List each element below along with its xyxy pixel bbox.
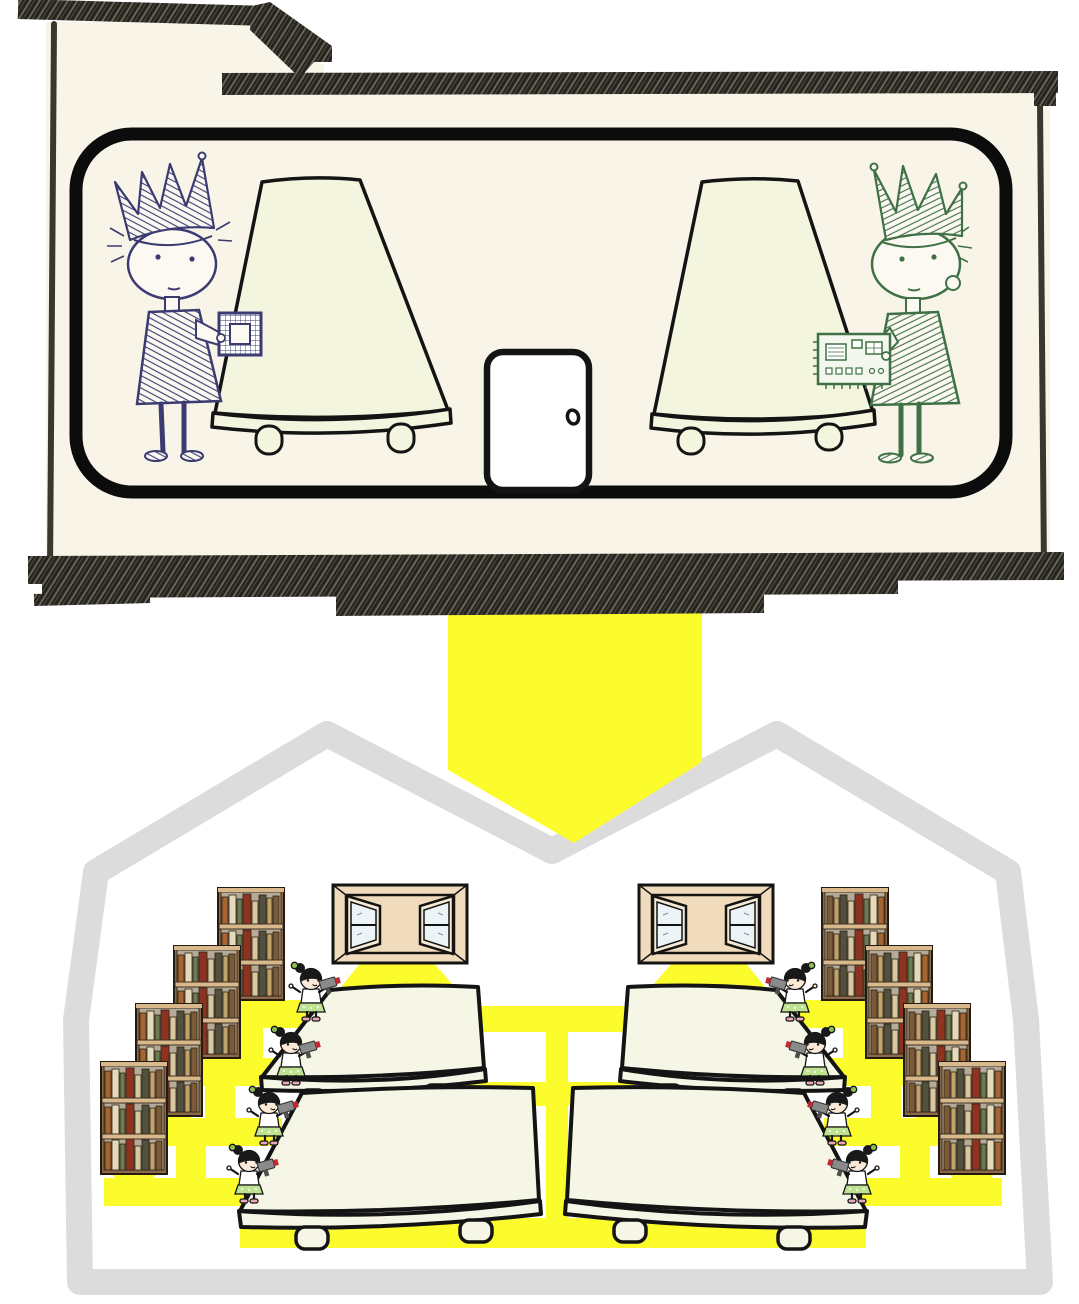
- foundation-band-3: [336, 601, 764, 604]
- board-capacitor: [870, 369, 875, 374]
- foot: [879, 454, 901, 463]
- neck: [906, 298, 920, 313]
- top-house: [18, 2, 1058, 576]
- table-foot: [256, 426, 282, 454]
- eye: [931, 254, 936, 259]
- right-wall: [1040, 104, 1044, 572]
- illustration-stage: [0, 0, 1079, 1304]
- illustration-canvas: [0, 0, 1079, 1304]
- left-wall: [50, 24, 54, 570]
- table-foot: [678, 428, 704, 454]
- crown-ball: [199, 153, 206, 160]
- crown-ball: [871, 164, 878, 171]
- eye: [189, 256, 194, 261]
- eye: [155, 254, 160, 259]
- board-capacitor: [879, 369, 884, 374]
- circuit-board-icon: [813, 334, 890, 389]
- table-foot: [388, 424, 414, 452]
- foundation-band-left: [34, 597, 150, 600]
- foundation-band-2: [42, 586, 898, 590]
- table-foot: [816, 424, 842, 450]
- ear: [946, 276, 960, 290]
- main-roof: [222, 82, 1058, 84]
- board-pad: [836, 368, 842, 374]
- upper-roof: [18, 9, 268, 16]
- door: [487, 352, 589, 490]
- chip-die: [230, 324, 250, 344]
- foot: [181, 451, 203, 461]
- door-knob: [566, 409, 580, 425]
- board-component: [852, 340, 862, 348]
- hand: [217, 334, 225, 342]
- hand: [882, 352, 890, 360]
- board-pad: [846, 368, 852, 374]
- foundation-band-1: [28, 566, 1064, 570]
- workshop-right-half-mirrored: [550, 885, 1005, 1249]
- foot: [911, 454, 933, 463]
- house-foundation: [28, 566, 1064, 604]
- eye: [899, 256, 904, 261]
- roof-end-cap: [1034, 78, 1056, 106]
- cpu-chip-icon: [217, 313, 261, 355]
- board-pad: [856, 368, 862, 374]
- workshop-interior: [101, 885, 1005, 1249]
- foot: [145, 451, 167, 461]
- board-pad: [826, 368, 832, 374]
- crown-ball: [960, 183, 967, 190]
- workshop-left-half: [101, 885, 556, 1249]
